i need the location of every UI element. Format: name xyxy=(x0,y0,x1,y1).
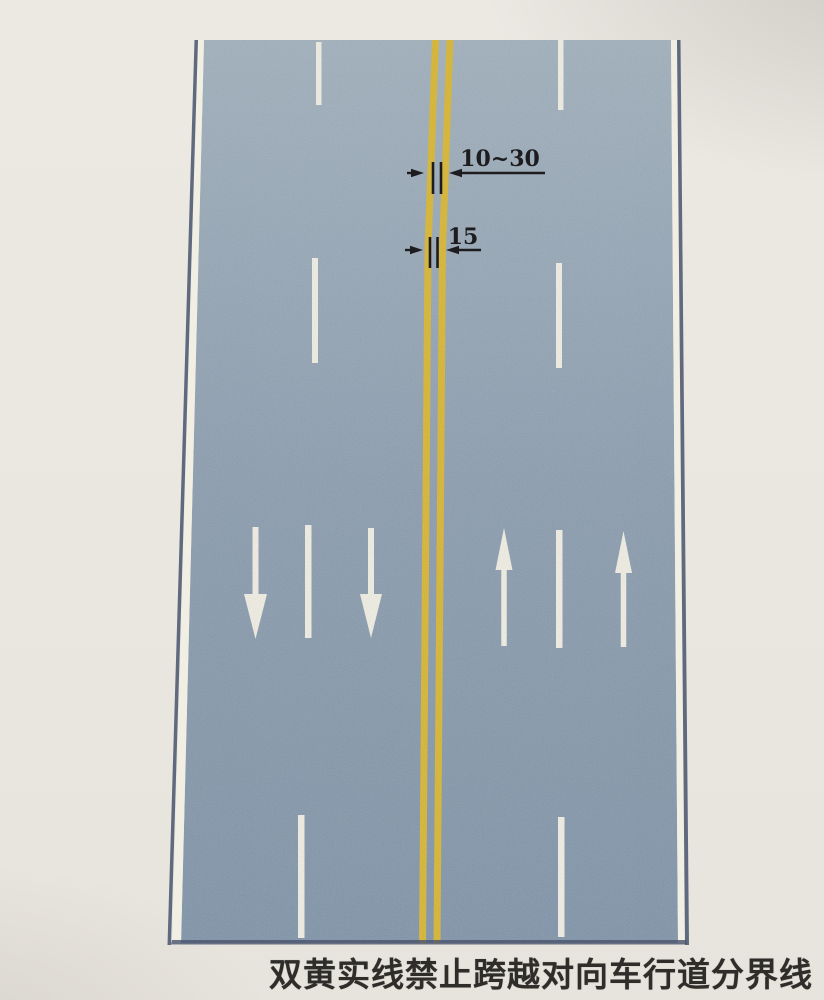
caption: 双黄实线禁止跨越对向车行道分界线 xyxy=(269,948,813,996)
print-grain-texture xyxy=(160,38,695,948)
road-grain xyxy=(160,38,695,948)
scanned-page: 10~3015 双黄实线禁止跨越对向车行道分界线 xyxy=(0,0,824,1000)
bottom-road-outline xyxy=(171,940,687,945)
road-marking-diagram: 10~3015 xyxy=(0,0,824,1000)
dimension-label-10-30: 10~30 xyxy=(460,146,540,172)
dimension-label-15: 15 xyxy=(448,224,479,250)
